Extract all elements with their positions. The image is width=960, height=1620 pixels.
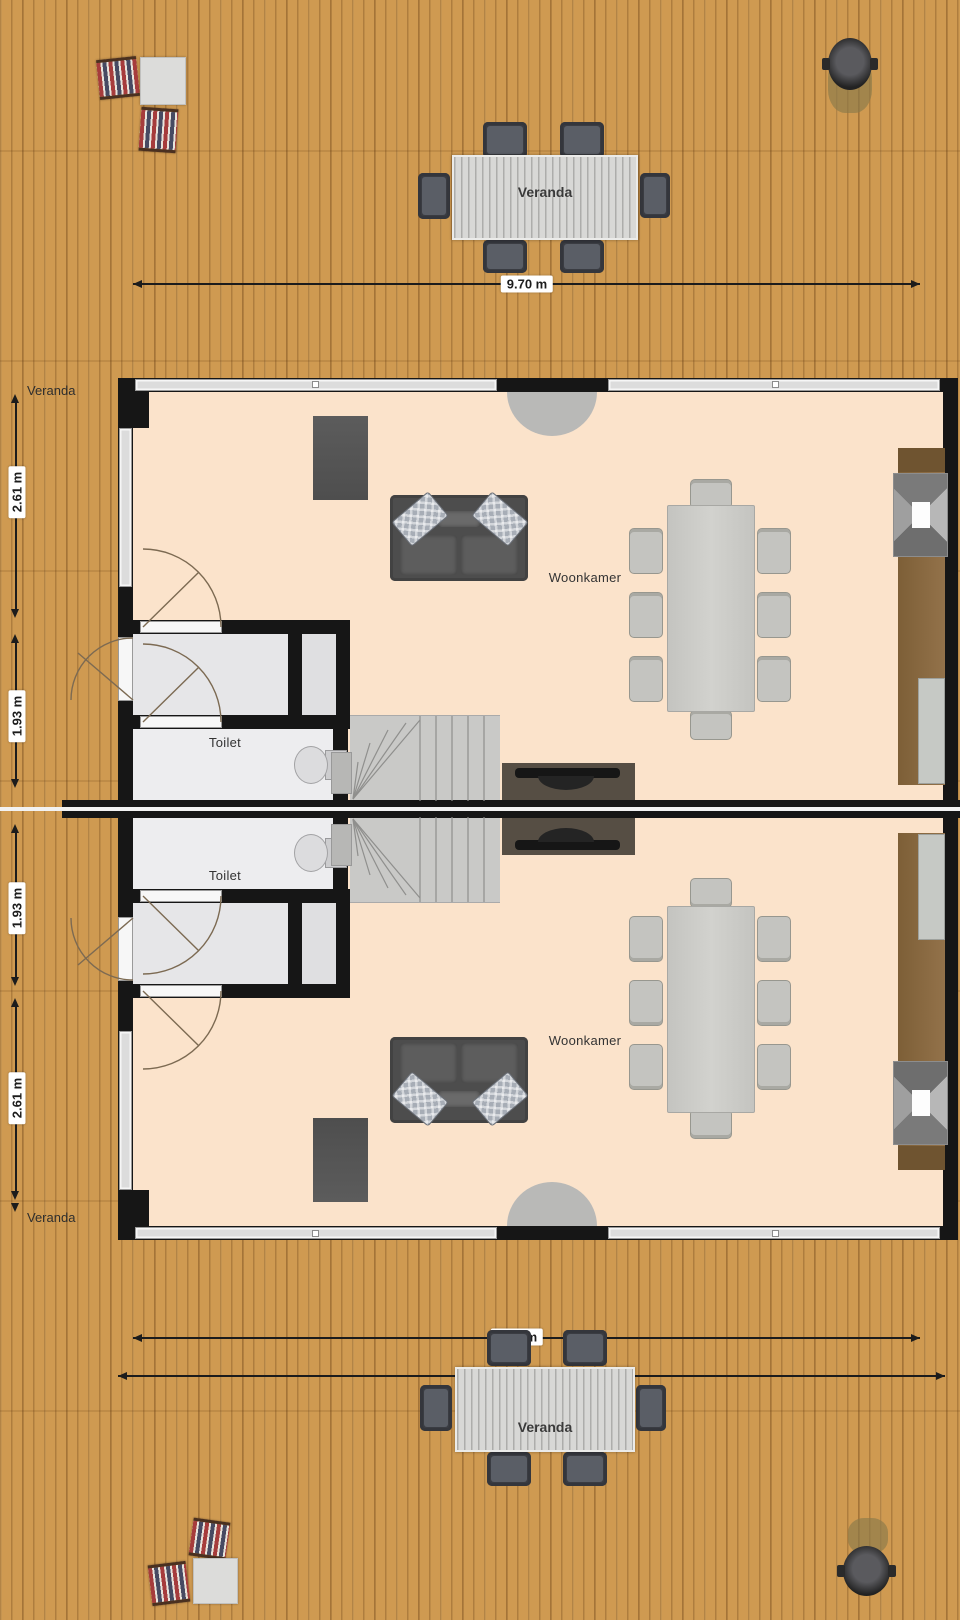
unit-top: Woonkamer Toilet [0, 378, 960, 800]
veranda-chair [563, 1330, 607, 1366]
toilet-door-leaf [143, 896, 199, 951]
veranda-chair [420, 1385, 452, 1431]
veranda-chair [563, 1452, 607, 1486]
veranda-dining-table: Veranda [455, 1367, 635, 1452]
hall-door-leaf [143, 991, 199, 1046]
veranda-chair [487, 1330, 531, 1366]
deck-lounge-chair [96, 56, 140, 100]
veranda-chair [560, 240, 604, 273]
entrance-door-leaf [78, 653, 133, 700]
bbq-grill [828, 38, 872, 90]
dim-arrow-left [133, 1334, 142, 1342]
unit-bottom: Woonkamer Toilet [0, 818, 960, 1240]
deck-lounge-chair [189, 1518, 231, 1561]
deck-lounge-chair [139, 107, 179, 153]
bbq-handle [822, 58, 830, 70]
dim-arrow-left [133, 280, 142, 288]
veranda-chair [640, 173, 670, 218]
dim-arrow-left [118, 1372, 127, 1380]
hall-door-leaf [143, 572, 199, 627]
entrance-door-arc [71, 918, 133, 980]
dim-arrow-right [911, 280, 920, 288]
deck-side-table [140, 57, 186, 105]
bbq-grill [843, 1546, 890, 1596]
veranda-chair [418, 173, 450, 219]
deck-side-table [193, 1558, 238, 1604]
veranda-chair [487, 1452, 531, 1486]
door-swings [0, 818, 960, 1240]
door-swings [0, 378, 960, 800]
veranda-table-label: Veranda [454, 184, 636, 200]
dim-arrow-right [911, 1334, 920, 1342]
veranda-table-label: Veranda [457, 1419, 633, 1435]
veranda-chair [560, 122, 604, 158]
floor-plan-canvas: Veranda 9.70 m Veranda 2.61 m 1.93 m 1.9… [0, 0, 960, 1620]
entrance-door-arc [71, 638, 133, 700]
veranda-chair [483, 122, 527, 158]
bbq-handle [870, 58, 878, 70]
veranda-chair [636, 1385, 666, 1431]
dim-arrow-right [936, 1372, 945, 1380]
bbq-handle [837, 1565, 845, 1577]
entrance-door-leaf [78, 918, 133, 965]
dim-label-top-width: 9.70 m [501, 276, 553, 293]
veranda-chair [483, 240, 527, 273]
deck-lounge-chair [148, 1561, 191, 1606]
veranda-dining-table: Veranda [452, 155, 638, 240]
bbq-handle [888, 1565, 896, 1577]
toilet-door-leaf [143, 667, 199, 722]
party-wall-joint-line [0, 807, 960, 811]
